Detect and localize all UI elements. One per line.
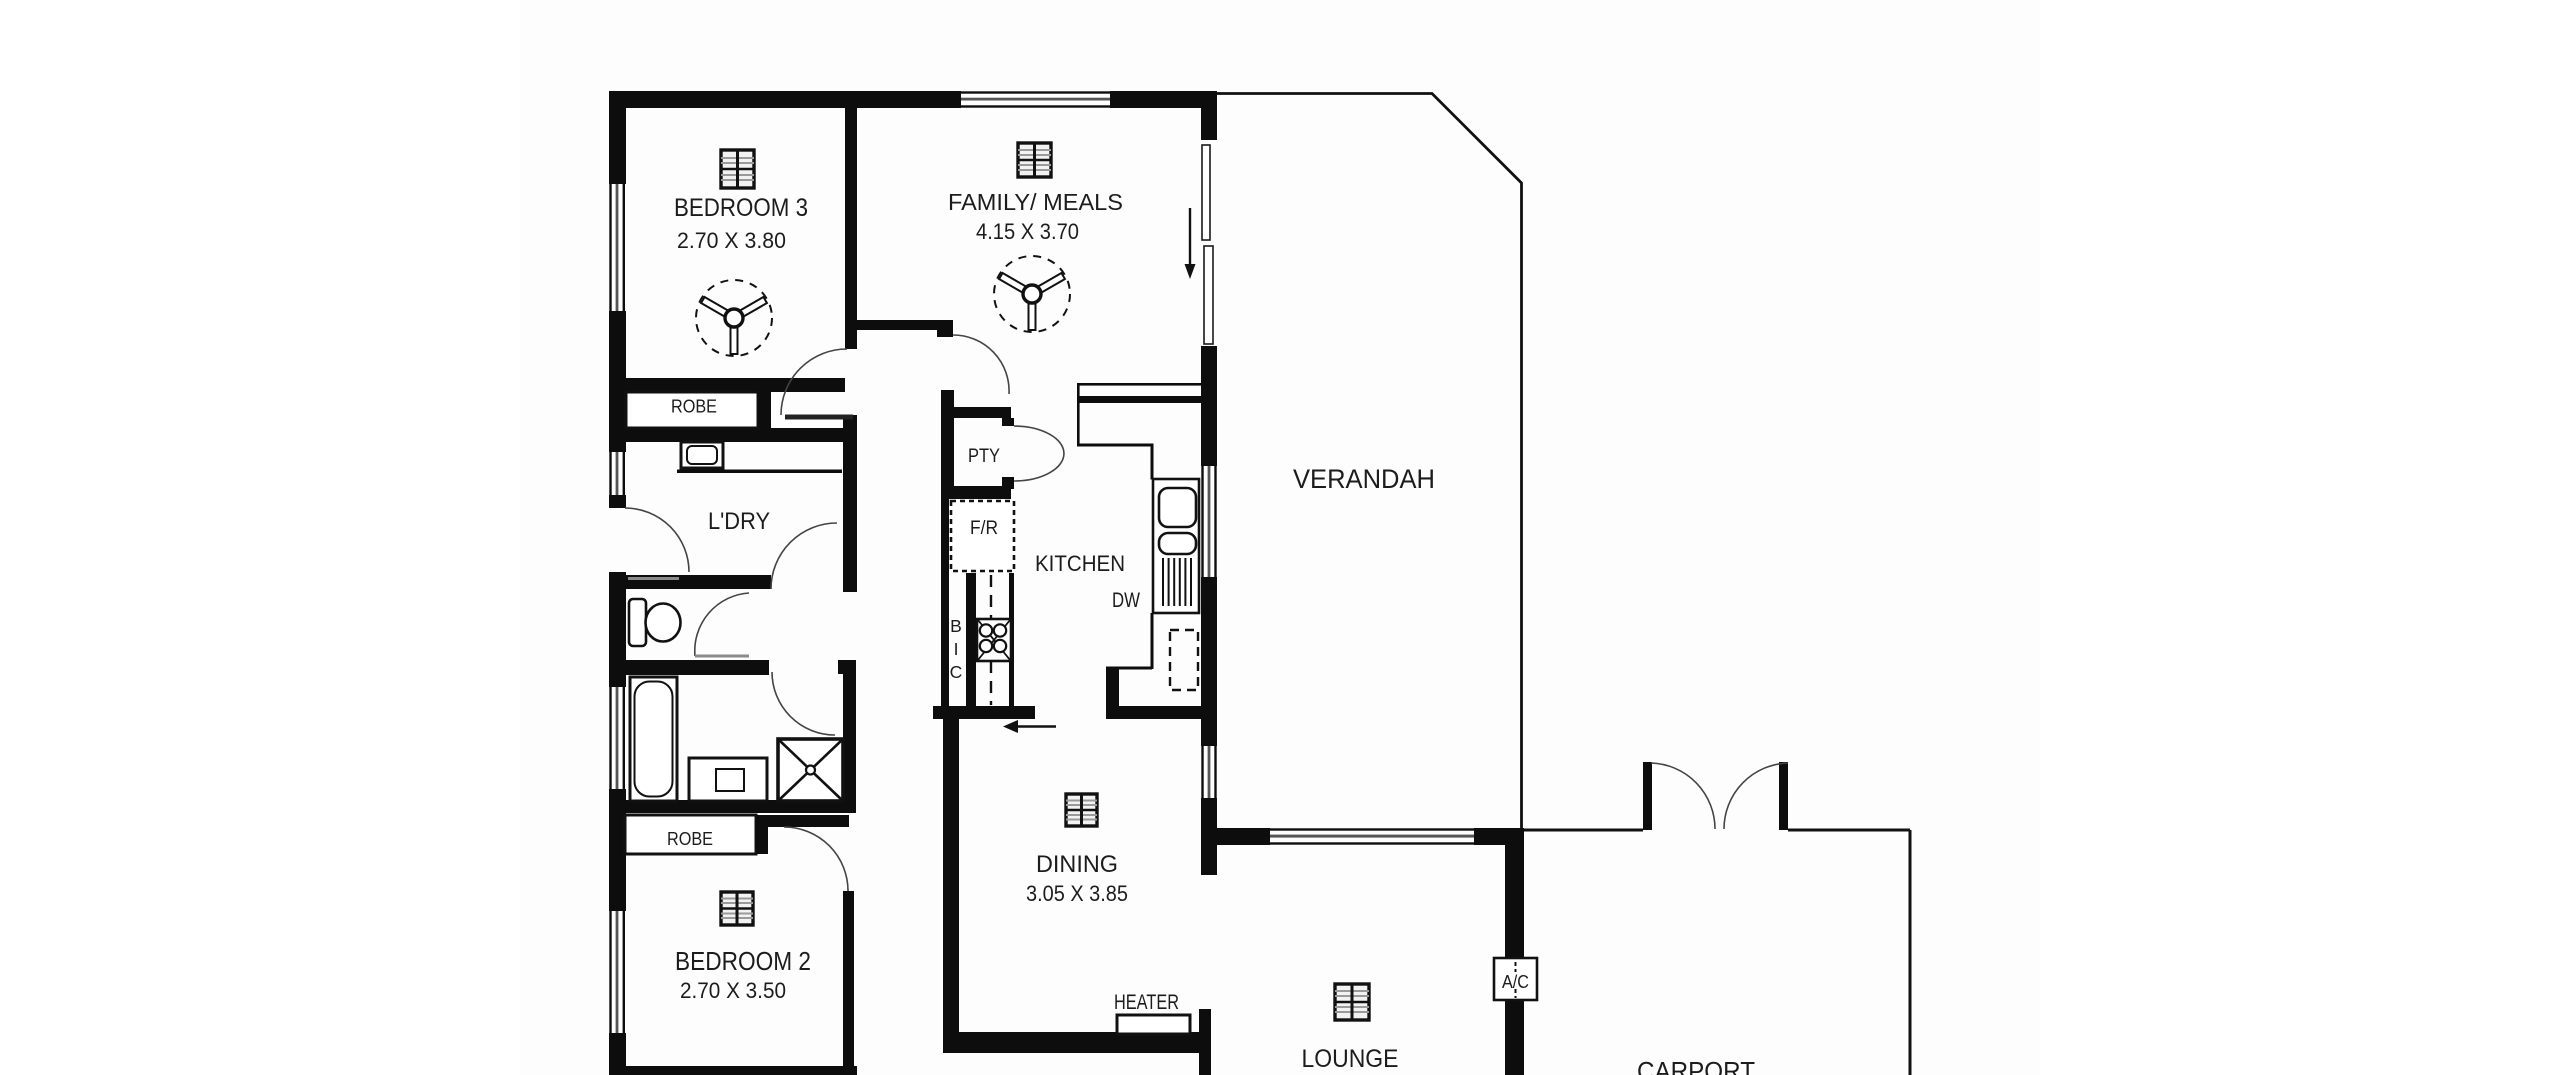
svg-text:DW: DW — [1112, 589, 1140, 612]
svg-text:FAMILY/ MEALS: FAMILY/ MEALS — [948, 189, 1123, 215]
svg-text:KITCHEN: KITCHEN — [1035, 551, 1125, 576]
svg-text:A/C: A/C — [1502, 971, 1529, 992]
svg-text:ROBE: ROBE — [667, 829, 713, 849]
svg-text:BEDROOM 2: BEDROOM 2 — [675, 948, 811, 976]
svg-text:I: I — [954, 639, 959, 659]
svg-text:B: B — [950, 616, 962, 636]
svg-text:4.15 X 3.70: 4.15 X 3.70 — [976, 219, 1079, 244]
svg-text:DINING: DINING — [1036, 851, 1118, 878]
svg-text:CARPORT: CARPORT — [1637, 1058, 1755, 1075]
svg-text:C: C — [950, 662, 963, 682]
svg-text:PTY: PTY — [968, 445, 1000, 467]
svg-text:2.70 X 3.50: 2.70 X 3.50 — [680, 978, 786, 1003]
svg-text:ROBE: ROBE — [671, 397, 717, 417]
svg-text:LOUNGE: LOUNGE — [1302, 1045, 1399, 1073]
svg-text:F/R: F/R — [970, 518, 998, 539]
svg-text:2.70 X 3.80: 2.70 X 3.80 — [677, 228, 786, 253]
svg-text:L'DRY: L'DRY — [708, 508, 770, 535]
svg-text:VERANDAH: VERANDAH — [1293, 464, 1435, 494]
svg-text:3.05 X 3.85: 3.05 X 3.85 — [1026, 881, 1128, 906]
svg-text:BEDROOM 3: BEDROOM 3 — [674, 194, 808, 222]
svg-text:HEATER: HEATER — [1114, 991, 1179, 1014]
